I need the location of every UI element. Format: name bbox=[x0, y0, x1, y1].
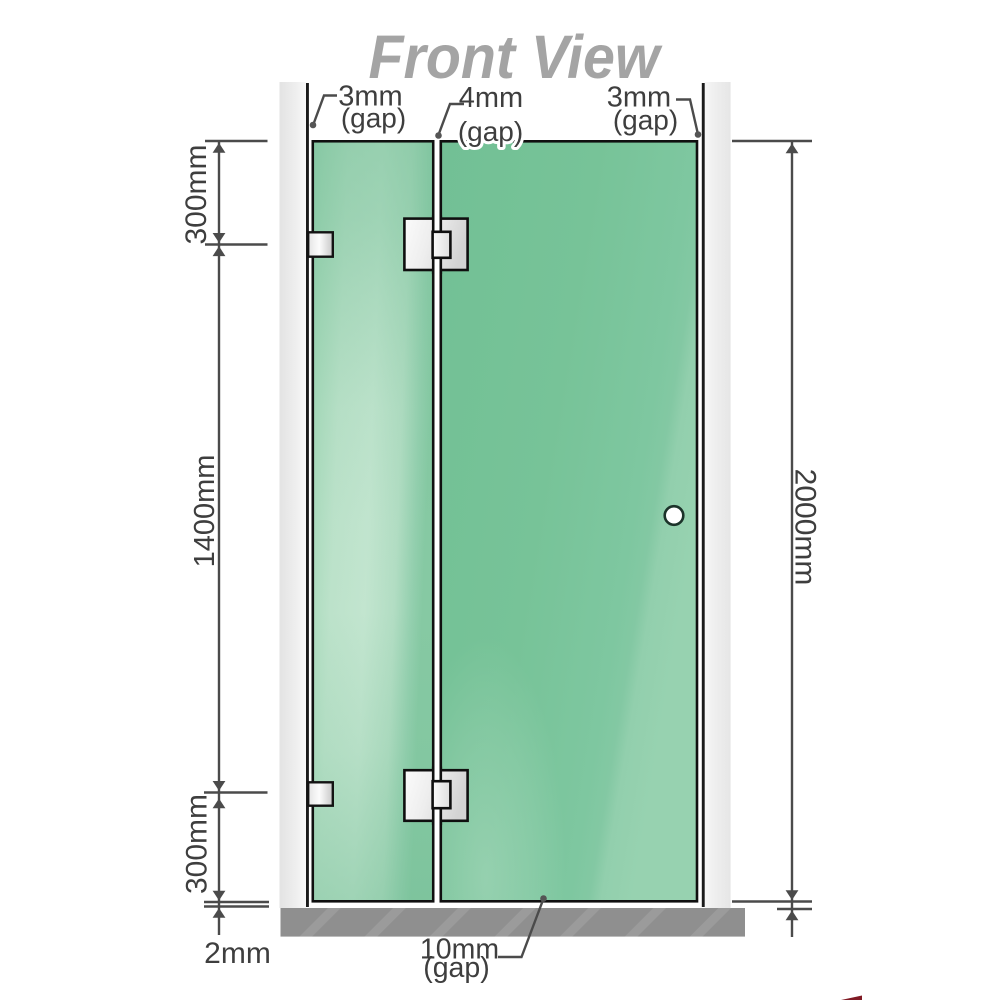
svg-text:(gap): (gap) bbox=[613, 105, 678, 136]
svg-text:(gap): (gap) bbox=[423, 952, 490, 984]
svg-text:2mm: 2mm bbox=[204, 937, 271, 970]
svg-text:300mm: 300mm bbox=[181, 794, 214, 894]
svg-text:4mm: 4mm bbox=[459, 82, 523, 114]
svg-text:(gap): (gap) bbox=[341, 103, 406, 134]
svg-text:300mm: 300mm bbox=[180, 144, 213, 244]
svg-text:1400mm: 1400mm bbox=[189, 455, 221, 568]
svg-text:2000mm: 2000mm bbox=[789, 469, 822, 586]
svg-text:(gap): (gap) bbox=[458, 116, 523, 147]
